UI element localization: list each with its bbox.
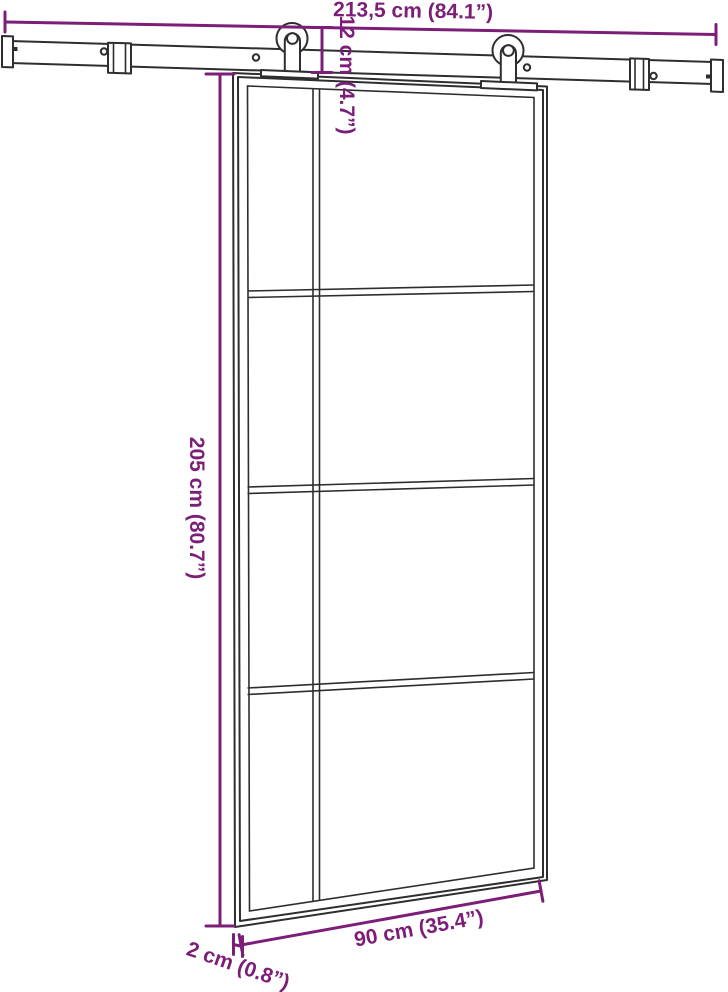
- roller-hub-right: [503, 45, 514, 56]
- rail-bolt-right: [706, 75, 710, 79]
- dimension-door-thickness: 2 cm (0.8”): [184, 935, 293, 992]
- rail-screw-hole: [101, 48, 107, 54]
- roller-foot-plate-left: [261, 70, 318, 79]
- product-dimension-diagram: 213,5 cm (84.1”) 12 cm (4.7”) 205 cm (80…: [0, 0, 728, 992]
- rail-connector-sleeve-right: [630, 58, 649, 90]
- dimension-rail-width: 213,5 cm (84.1”): [5, 0, 716, 45]
- rail-bolt-left: [14, 47, 18, 51]
- hanger-height-label: 12 cm (4.7”): [335, 15, 358, 134]
- dimension-door-height: 205 cm (80.7”): [185, 74, 234, 926]
- roller-foot-plate-right: [481, 81, 537, 90]
- rail-screw-hole: [650, 73, 656, 79]
- sliding-door: [233, 73, 547, 927]
- rail-end-cap-right: [711, 60, 723, 93]
- roller-hub-left: [287, 33, 298, 44]
- door-height-label: 205 cm (80.7”): [185, 437, 208, 579]
- rail-screw-hole: [253, 54, 259, 60]
- rail-screw-hole: [524, 64, 530, 70]
- door-front-face: [238, 77, 543, 921]
- rail-connector-sleeve-left: [108, 43, 131, 74]
- diagram-canvas: 213,5 cm (84.1”) 12 cm (4.7”) 205 cm (80…: [0, 0, 728, 992]
- rail-end-cap-left: [2, 36, 13, 67]
